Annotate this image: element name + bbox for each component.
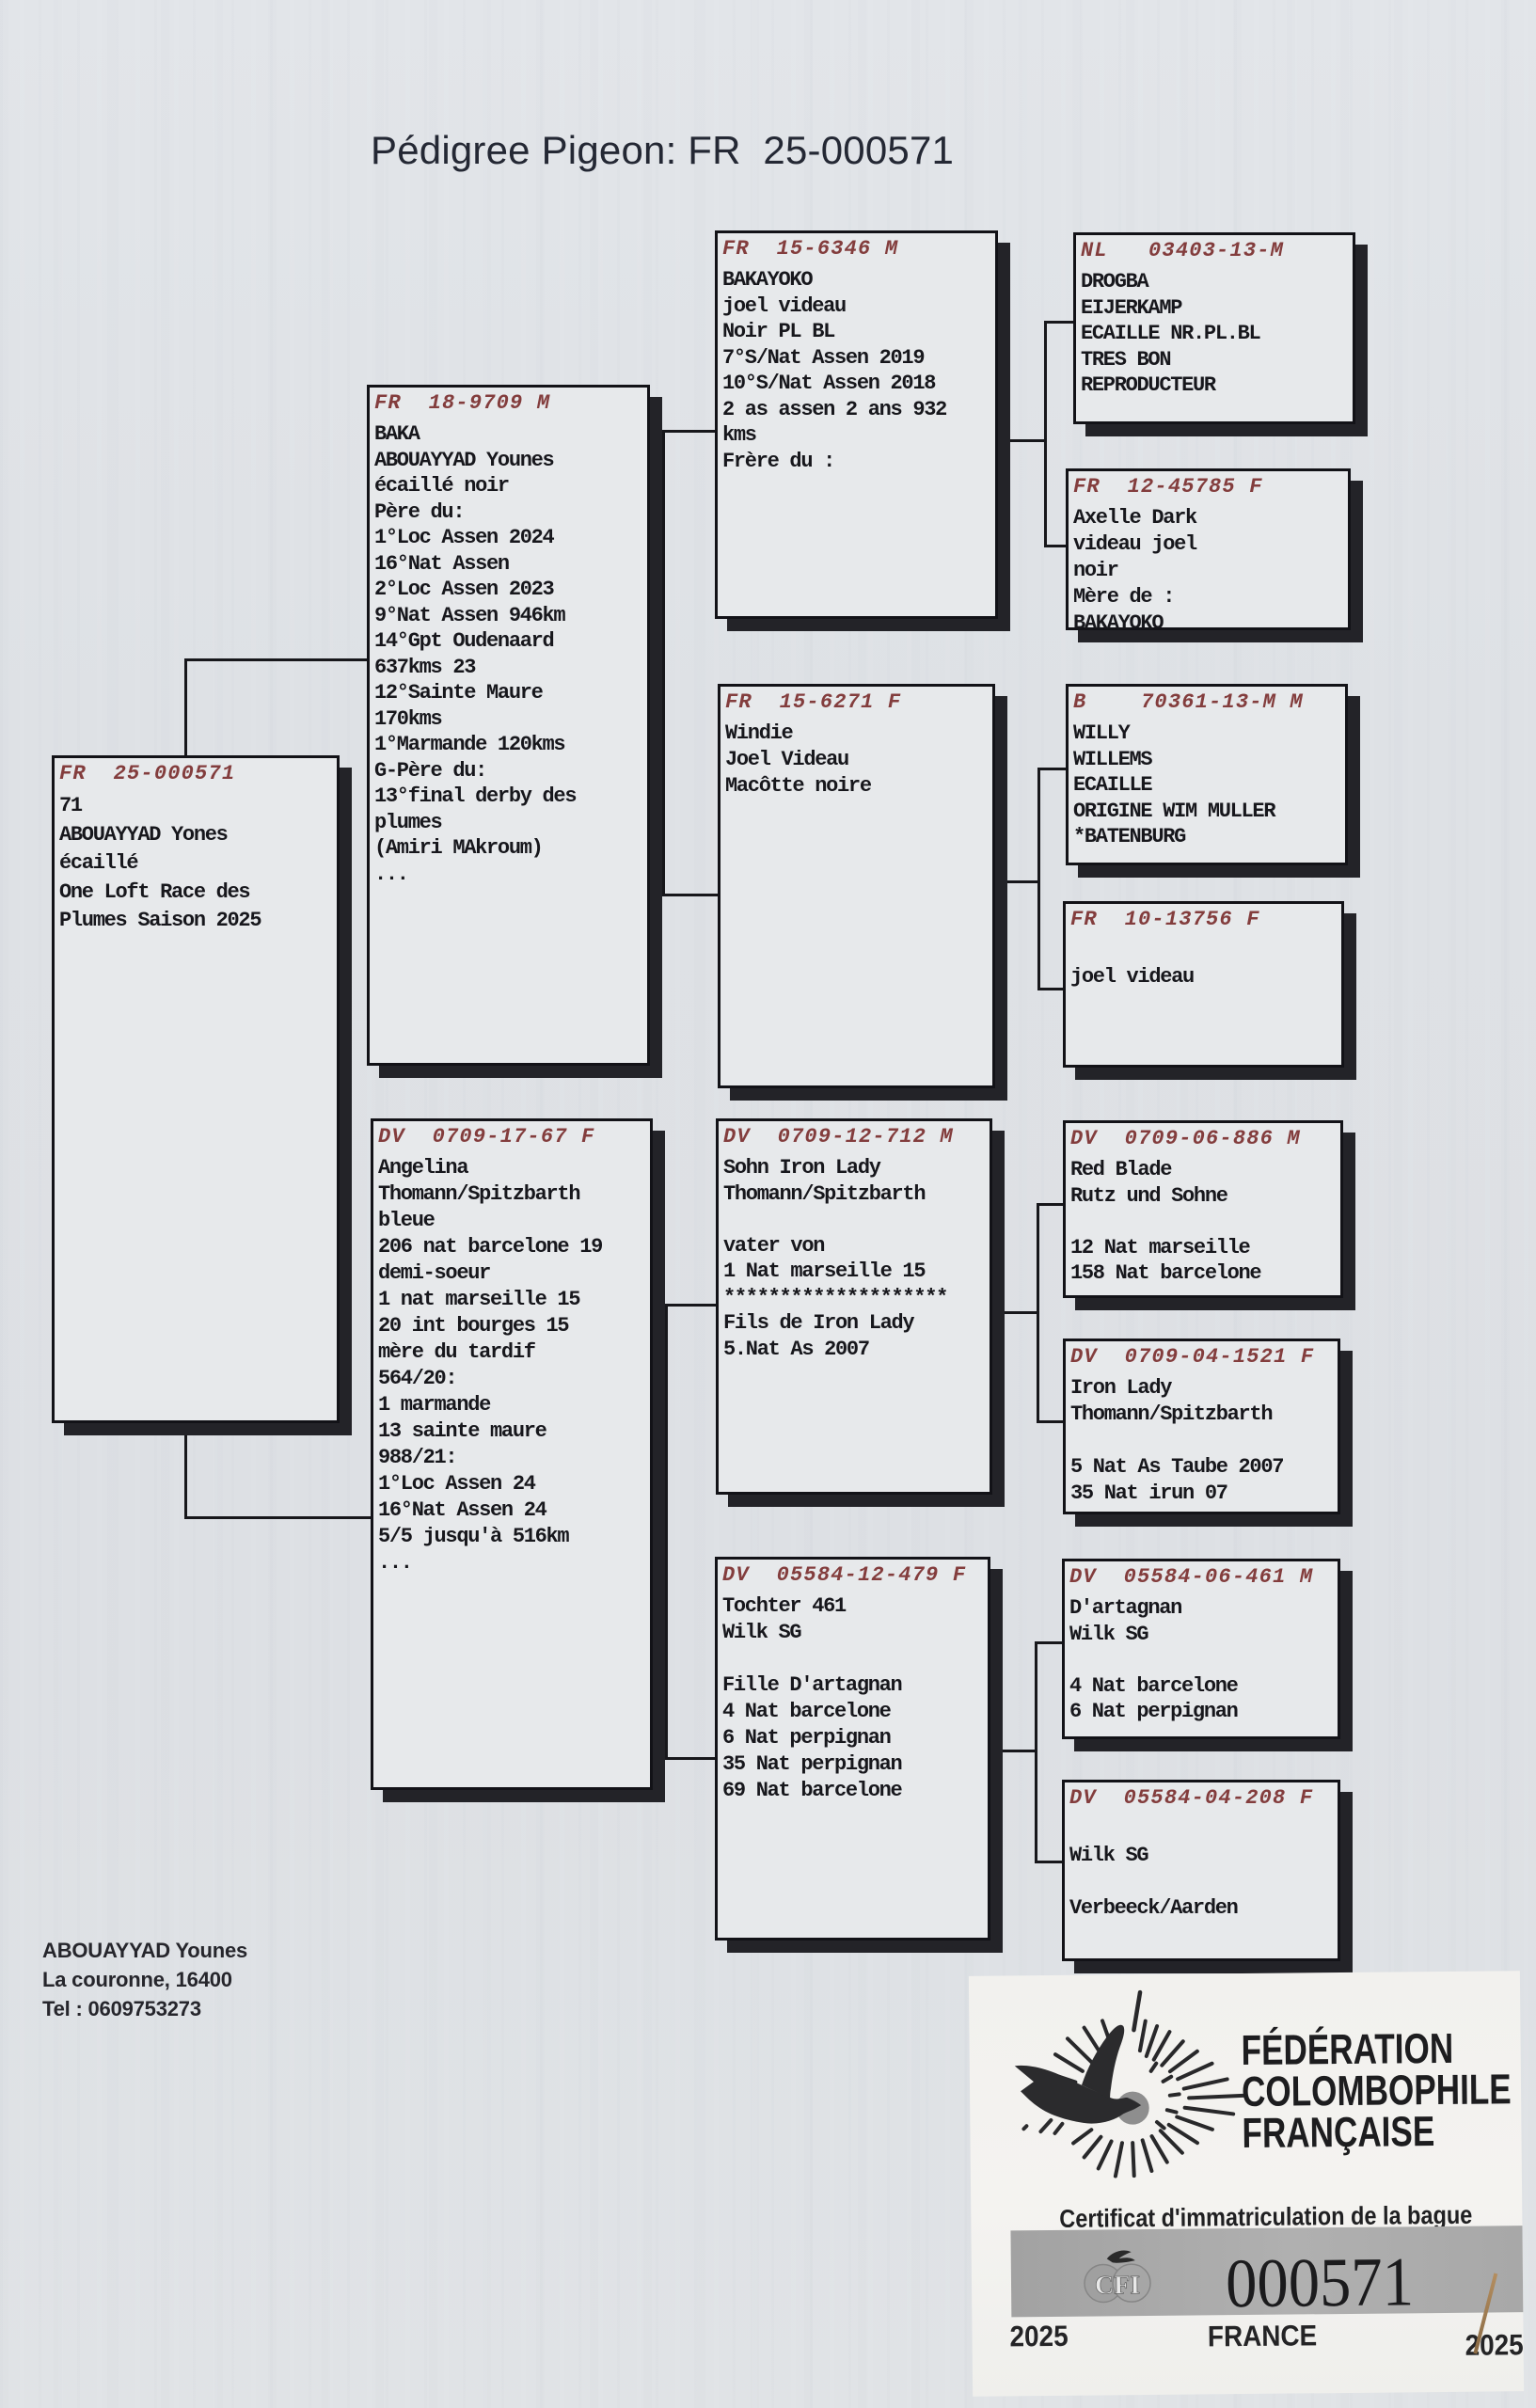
svg-text:CFI: CFI <box>1095 2271 1141 2300</box>
